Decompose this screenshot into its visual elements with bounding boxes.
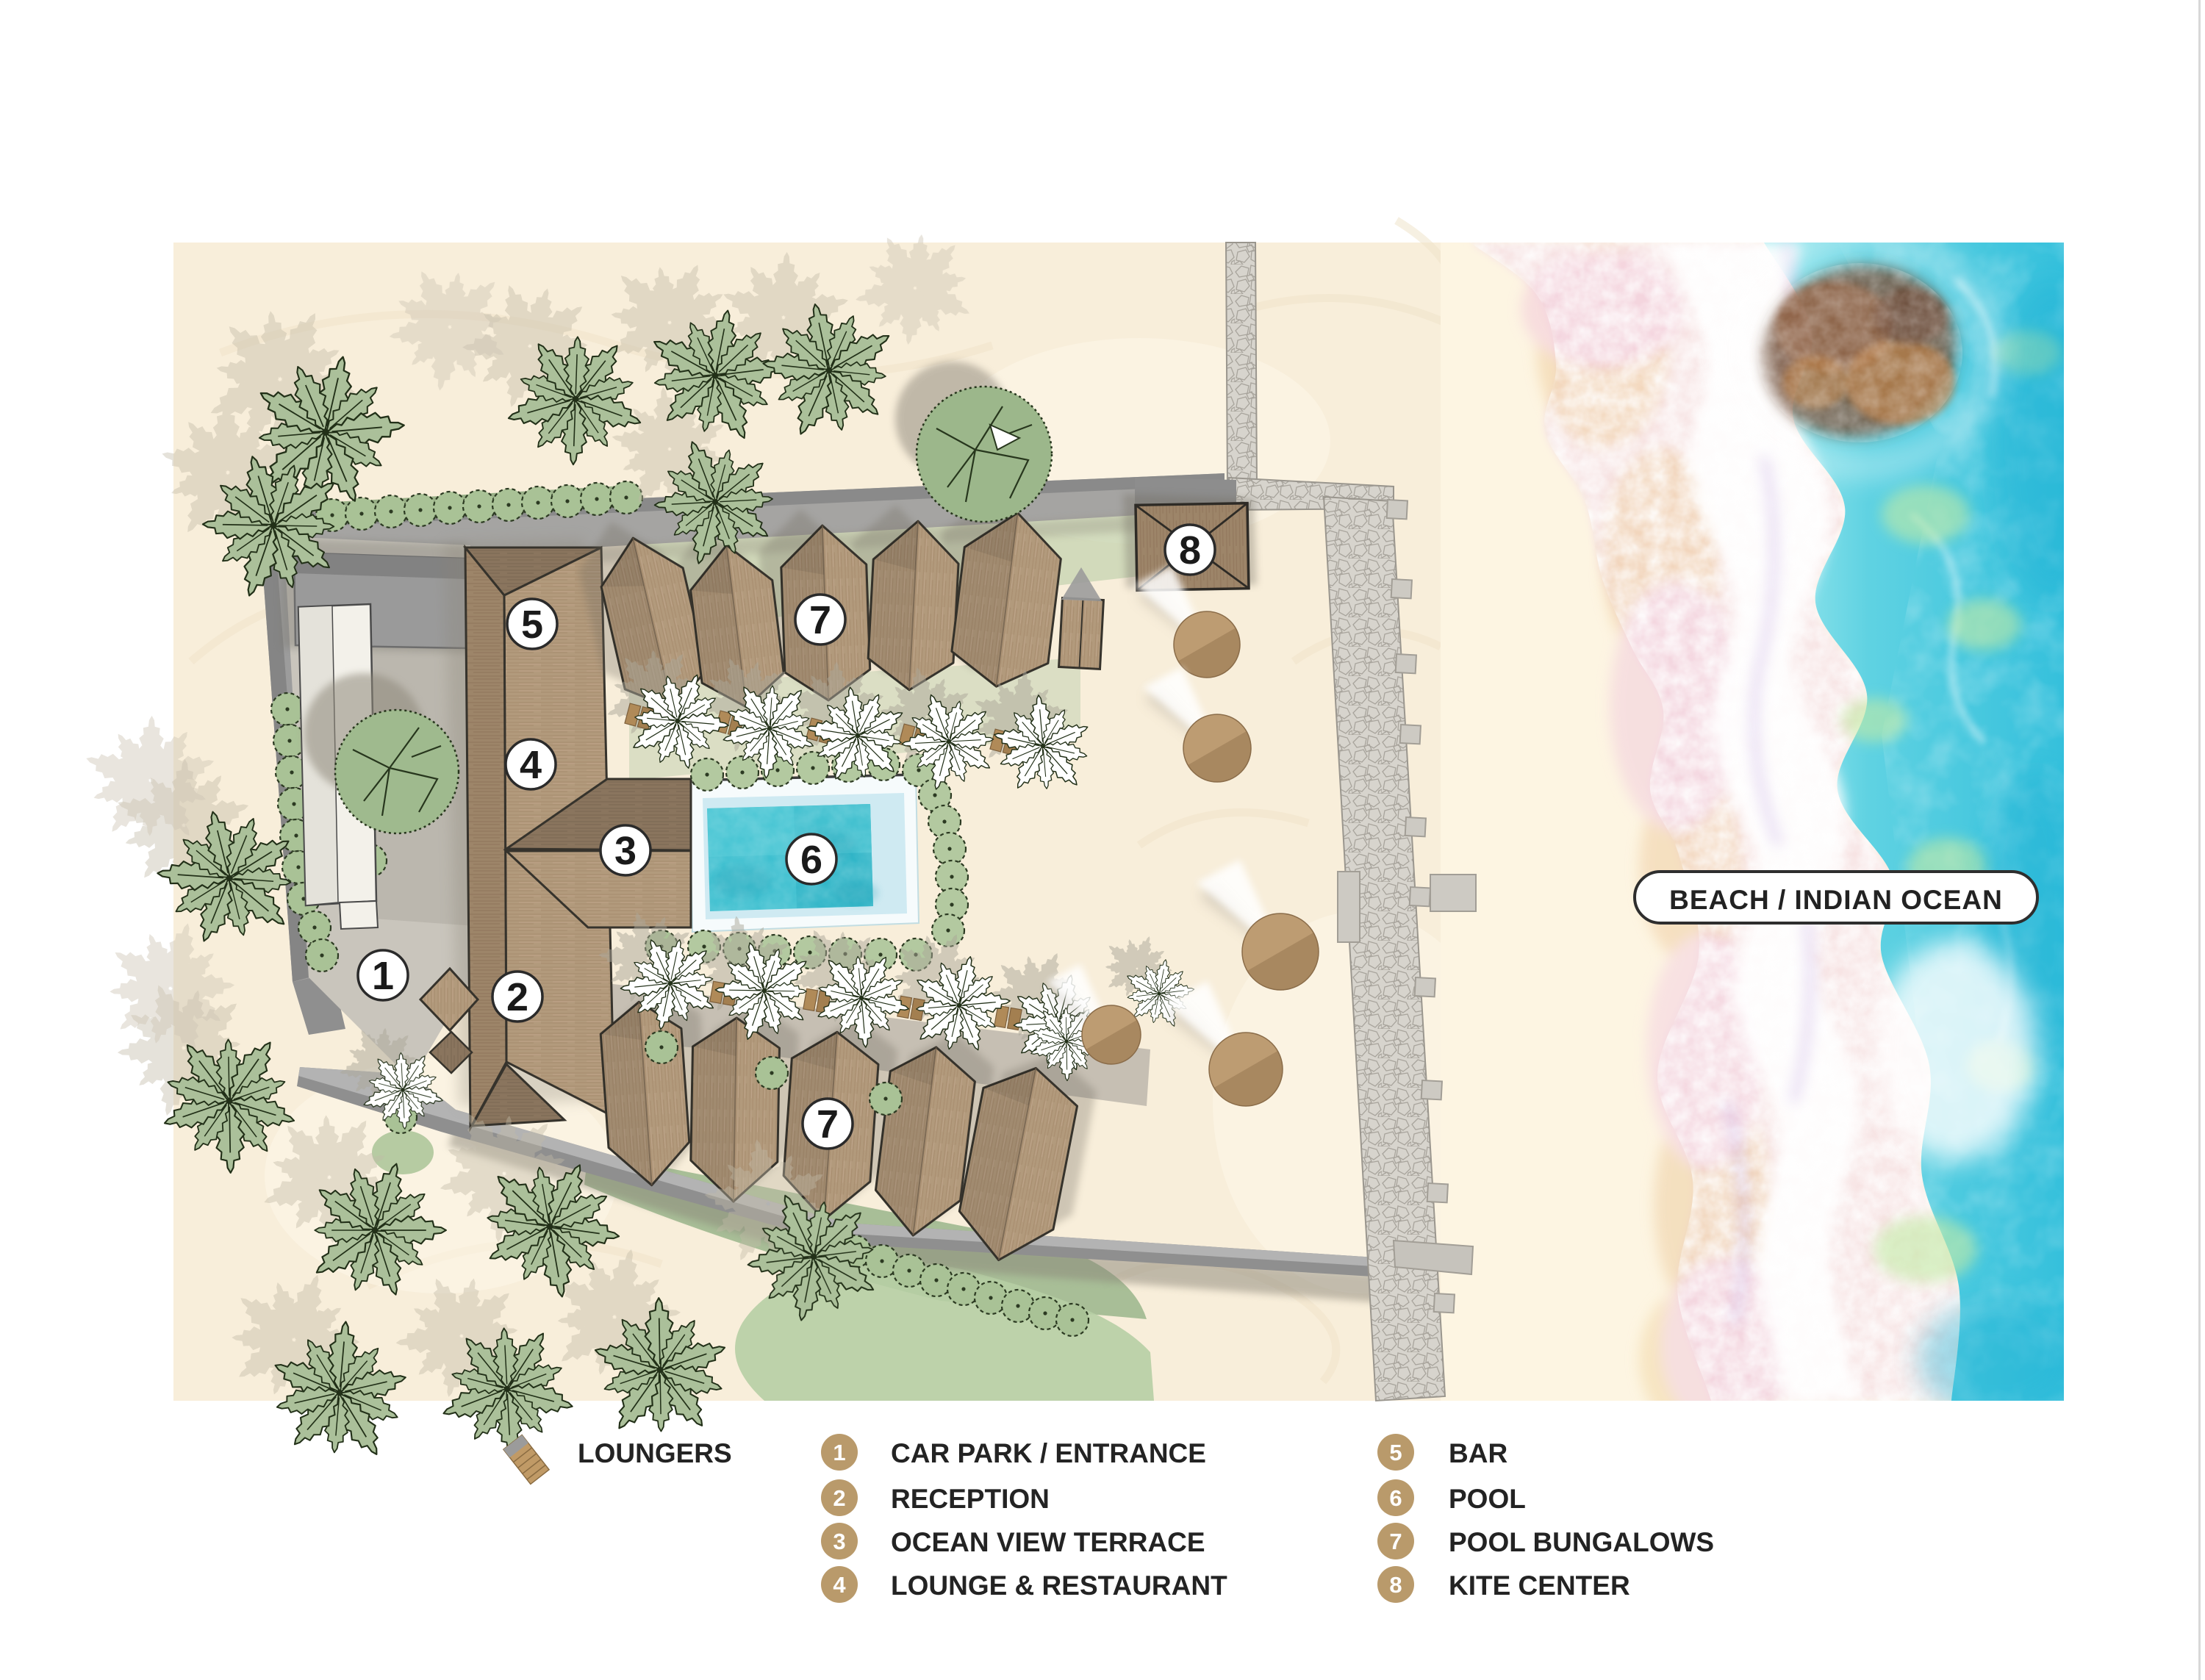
svg-text:6: 6 — [1389, 1485, 1402, 1511]
svg-text:5: 5 — [1389, 1440, 1402, 1465]
svg-text:6: 6 — [800, 838, 822, 882]
svg-text:POOL BUNGALOWS: POOL BUNGALOWS — [1449, 1527, 1714, 1557]
svg-text:OCEAN VIEW TERRACE: OCEAN VIEW TERRACE — [891, 1527, 1205, 1557]
svg-text:3: 3 — [833, 1529, 845, 1554]
svg-text:7: 7 — [809, 598, 831, 642]
svg-text:LOUNGE & RESTAURANT: LOUNGE & RESTAURANT — [891, 1570, 1227, 1601]
svg-text:LOUNGERS: LOUNGERS — [578, 1438, 732, 1468]
svg-text:RECEPTION: RECEPTION — [891, 1484, 1050, 1514]
svg-text:7: 7 — [1389, 1529, 1402, 1554]
svg-text:8: 8 — [1179, 528, 1201, 572]
svg-text:KITE CENTER: KITE CENTER — [1449, 1570, 1630, 1601]
svg-text:2: 2 — [833, 1485, 845, 1511]
svg-text:5: 5 — [521, 603, 543, 647]
svg-text:CAR PARK / ENTRANCE: CAR PARK / ENTRANCE — [891, 1438, 1206, 1468]
svg-text:3: 3 — [614, 829, 637, 873]
svg-text:7: 7 — [817, 1102, 839, 1146]
svg-text:1: 1 — [833, 1440, 845, 1465]
svg-text:4: 4 — [520, 743, 542, 787]
svg-text:8: 8 — [1389, 1572, 1402, 1598]
svg-text:2: 2 — [506, 975, 528, 1019]
svg-text:POOL: POOL — [1449, 1484, 1526, 1514]
svg-text:BAR: BAR — [1449, 1438, 1507, 1468]
svg-text:4: 4 — [833, 1572, 846, 1598]
svg-text:BEACH / INDIAN OCEAN: BEACH / INDIAN OCEAN — [1669, 885, 2003, 915]
svg-text:1: 1 — [372, 954, 394, 998]
